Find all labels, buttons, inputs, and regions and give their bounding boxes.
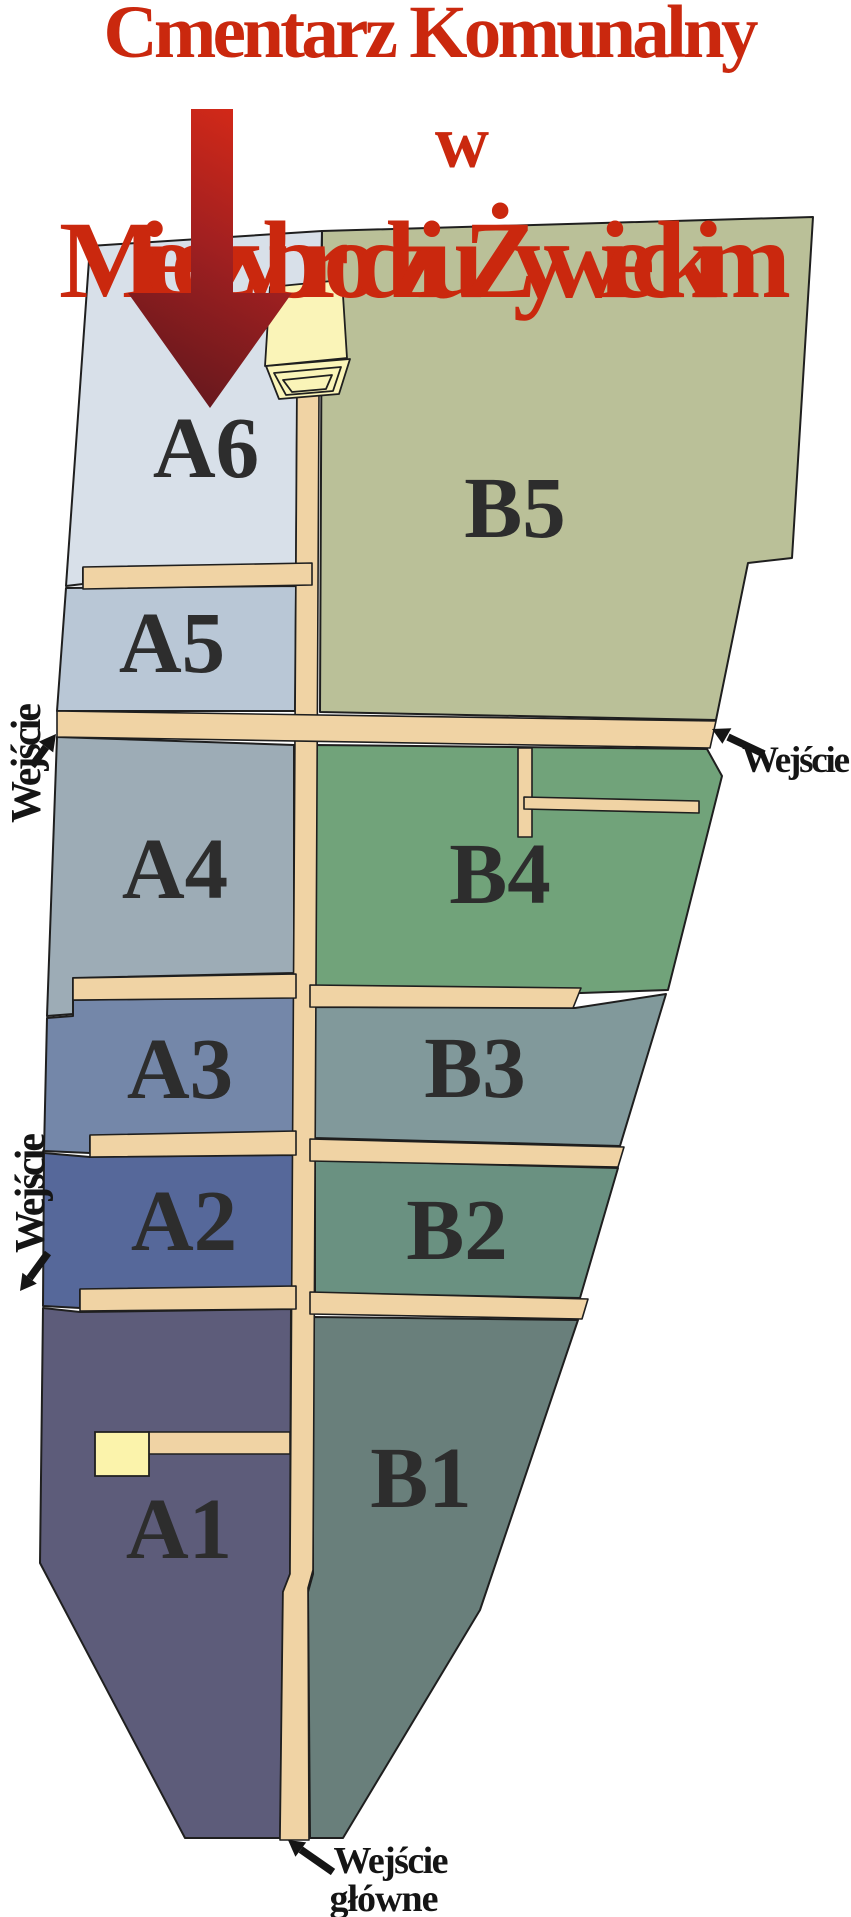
section-label-B2: B2 xyxy=(406,1181,508,1278)
section-label-A1: A1 xyxy=(126,1480,232,1577)
entrance-left-upper: Wejście xyxy=(4,703,56,823)
path-a2-a1 xyxy=(80,1286,296,1311)
entrance-right-label: Wejście xyxy=(742,740,850,781)
section-label-A4: A4 xyxy=(122,820,228,917)
path-a3-a2 xyxy=(90,1131,296,1157)
entrance-main-label-line2: główne xyxy=(330,1878,439,1917)
entrance-main: Wejście główne xyxy=(288,1840,449,1917)
title-line-1: Cmentarz Komunalny xyxy=(104,0,759,74)
path-b4-b3 xyxy=(310,985,581,1008)
section-B1 xyxy=(308,1317,578,1838)
path-a6-a5 xyxy=(83,563,312,589)
entrance-main-arrow-shaft xyxy=(301,1850,333,1872)
section-label-A5: A5 xyxy=(119,594,225,691)
entrance-main-label-line1: Wejście xyxy=(334,1840,449,1882)
title-line-2: w xyxy=(435,101,489,184)
section-label-B1: B1 xyxy=(370,1429,472,1526)
cemetery-map-canvas: Cmentarz Komunalny w Międzybrodziu Żywie… xyxy=(0,0,851,1917)
entrance-right: Wejście xyxy=(712,728,850,781)
path-b4-stub-vertical xyxy=(518,748,532,837)
small-building xyxy=(95,1432,149,1476)
section-label-A6: A6 xyxy=(153,399,259,496)
path-a1-stub xyxy=(148,1432,290,1454)
section-label-A3: A3 xyxy=(127,1020,233,1117)
path-a4-a3 xyxy=(73,974,296,1000)
section-label-A2: A2 xyxy=(131,1172,237,1269)
section-label-B3: B3 xyxy=(424,1019,526,1116)
section-label-B5: B5 xyxy=(464,459,566,556)
entrance-left-lower-label: Wejście xyxy=(8,1133,54,1253)
section-label-B4: B4 xyxy=(449,825,551,922)
page-title: Cmentarz Komunalny w Międzybrodziu Żywie… xyxy=(59,0,791,321)
cemetery-map-page: Cmentarz Komunalny w Międzybrodziu Żywie… xyxy=(0,0,851,1917)
entrance-left-upper-label: Wejście xyxy=(4,703,50,823)
